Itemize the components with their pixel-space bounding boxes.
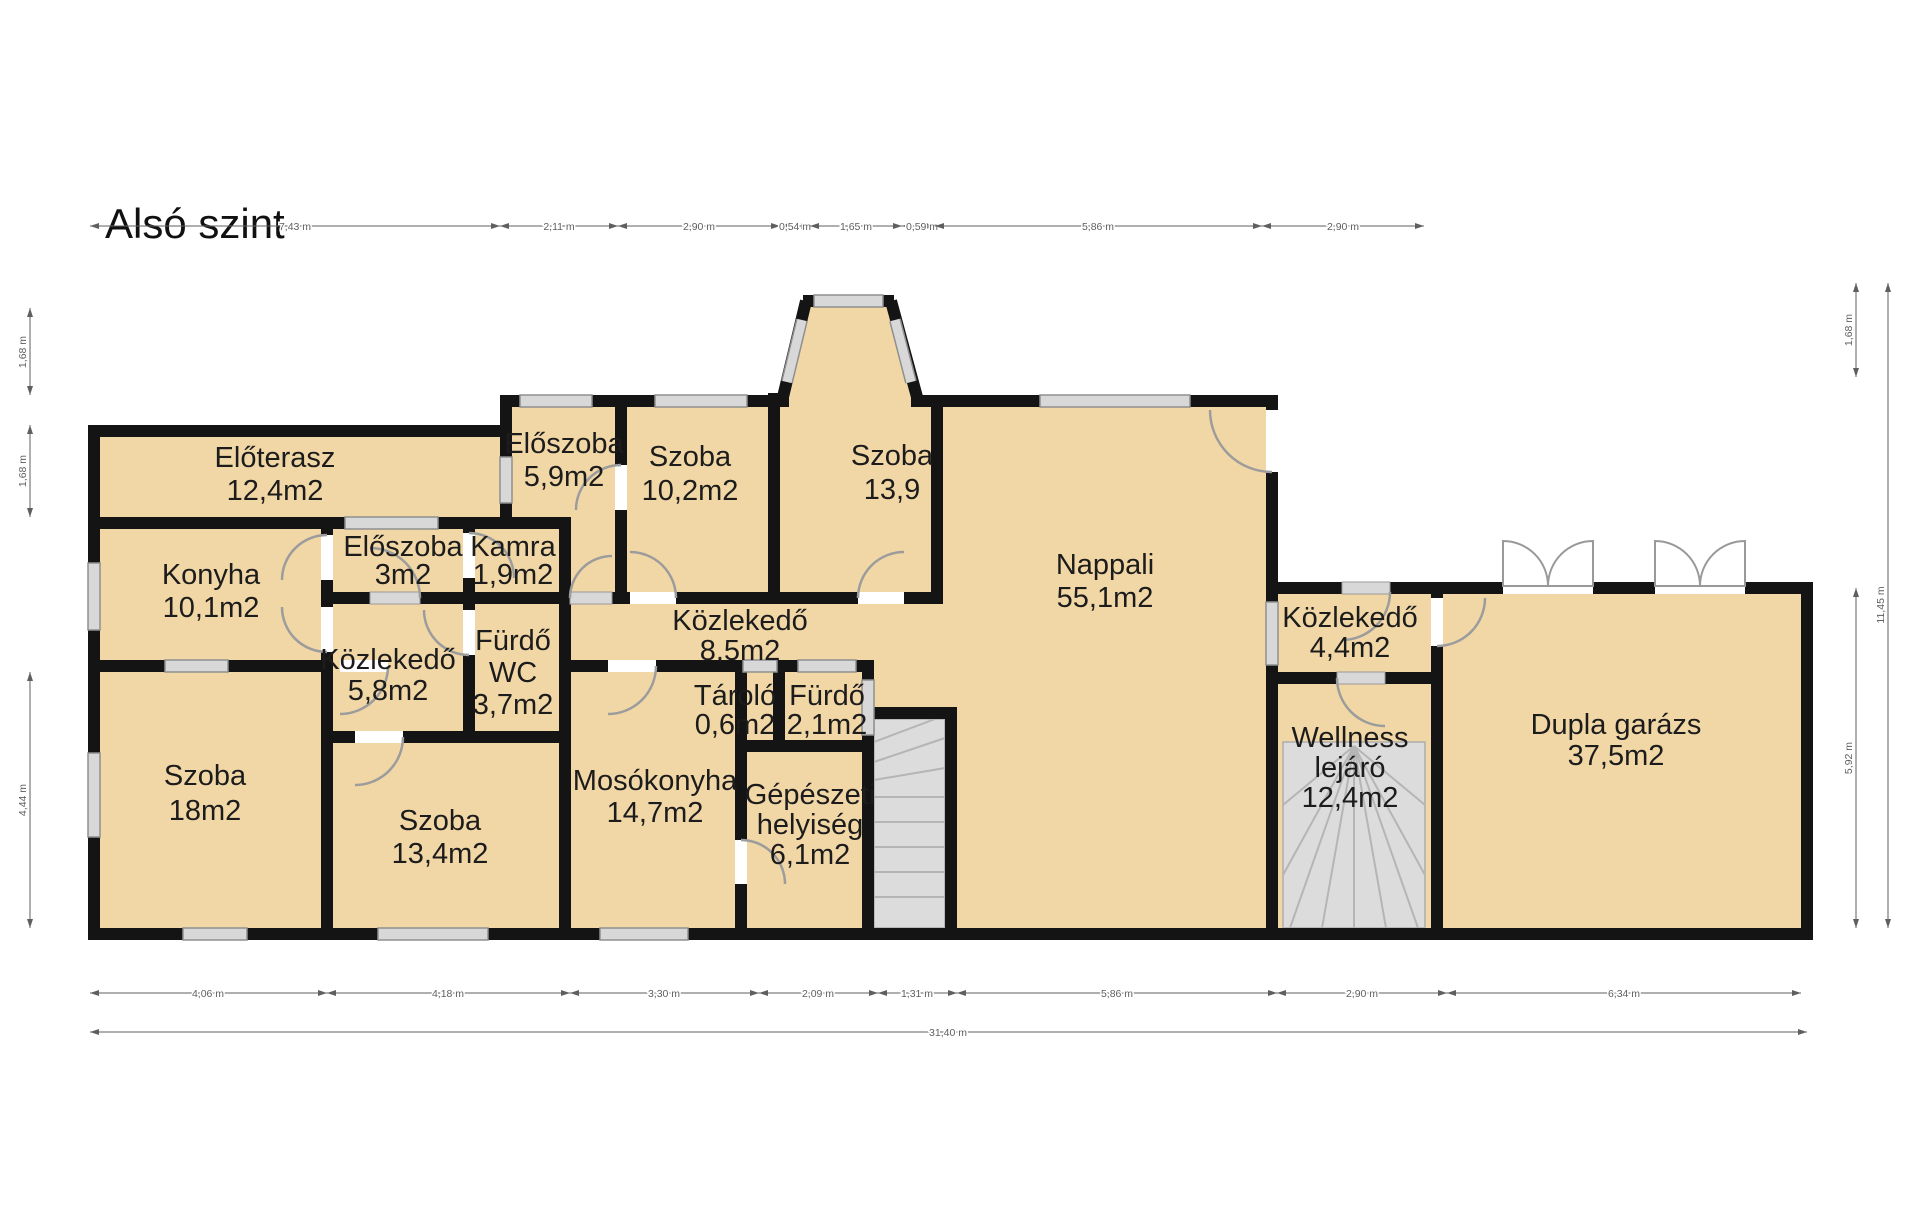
room-label: Gépészeti (745, 779, 876, 811)
dim-label: 0,54 m (779, 221, 811, 233)
window (88, 753, 100, 837)
dim-label: 1,68 m (17, 455, 29, 487)
dim-top-3: 0,54 m (779, 221, 811, 233)
window (378, 928, 488, 940)
room-label: 13,4m2 (392, 838, 489, 870)
garage-door-leaf (1503, 541, 1548, 586)
dim-label: 4,06 m (192, 988, 224, 1000)
dim-left-1: 1,68 m (17, 425, 30, 517)
dim-label: 3,30 m (648, 988, 680, 1000)
dim-bottom-1: 4,18 m (327, 988, 570, 1000)
room-label: Tároló (694, 680, 776, 712)
room-label: 14,7m2 (607, 797, 704, 829)
dim-left-2: 4,44 m (17, 672, 30, 928)
dim-label: 5,86 m (1101, 988, 1133, 1000)
room-label: 6,1m2 (770, 839, 851, 871)
dim-top-2: 2,90 m (618, 221, 780, 233)
room-label: Előterasz (215, 442, 336, 474)
dim-right-1: 5,92 m (1843, 588, 1856, 928)
room-label: Szoba (649, 441, 732, 473)
window (500, 457, 512, 503)
room-label: WC (489, 657, 537, 689)
room-label: 10,1m2 (163, 592, 260, 624)
room-label: 10,2m2 (642, 475, 739, 507)
room-label: Fürdő (789, 680, 865, 712)
room-label: 0,6m2 (695, 709, 776, 741)
room-label: 3m2 (375, 559, 431, 591)
room-label: 1,9m2 (473, 559, 554, 591)
opening-nappali-kozlekedo (1266, 602, 1278, 665)
dim-top-1: 2,11 m (500, 221, 618, 233)
window (655, 395, 747, 407)
room-label: 3,7m2 (473, 689, 554, 721)
dim-label: 31,40 m (929, 1027, 967, 1039)
window (345, 517, 438, 529)
page-title: Alsó szint (105, 200, 285, 247)
dim-bottom-5: 5,86 m (957, 988, 1277, 1000)
room-label: 5,9m2 (524, 461, 605, 493)
window (165, 660, 228, 672)
dim-label: 2,90 m (1327, 221, 1359, 233)
window (1040, 395, 1190, 407)
room-label: 12,4m2 (227, 475, 324, 507)
dim-label: 2,11 m (543, 221, 575, 233)
dim-bottom-3: 2,09 m (759, 988, 878, 1000)
room-label: 2,1m2 (787, 709, 868, 741)
room-label: 13,9 (864, 474, 920, 506)
room-label: helyiség (757, 809, 863, 841)
dim-label: 1,65 m (840, 221, 872, 233)
dim-left-0: 1,68 m (17, 308, 30, 395)
room-label: Közlekedő (672, 605, 807, 637)
dim-label: 1,68 m (1843, 314, 1855, 346)
dim-label: 0,59 m (906, 221, 938, 233)
room-label: 8,5m2 (700, 635, 781, 667)
window (183, 928, 247, 940)
dim-right-2: 11,45 m (1875, 283, 1888, 928)
room-label: Szoba (851, 440, 934, 472)
room-nappali (937, 401, 1272, 934)
room-label: Szoba (399, 805, 482, 837)
garage-door-leaf (1655, 541, 1700, 586)
dim-label: 4,44 m (17, 784, 29, 816)
room-label: Közlekedő (320, 644, 455, 676)
dim-label: 1,31 m (901, 988, 933, 1000)
dim-bottom-total: 31,40 m (90, 1027, 1807, 1039)
staircase-straight (874, 719, 945, 928)
floor-plan-also-szint: Alsó szint (0, 0, 1920, 1231)
room-label: 55,1m2 (1057, 582, 1154, 614)
dim-bottom-6: 2,90 m (1277, 988, 1447, 1000)
window (600, 928, 688, 940)
room-label: Wellness (1291, 722, 1408, 754)
dim-label: 11,45 m (1875, 586, 1887, 623)
room-label: Konyha (162, 559, 261, 591)
dim-label: 7,43 m (279, 221, 311, 233)
room-label: 18m2 (169, 795, 242, 827)
window (798, 660, 856, 672)
window (520, 395, 592, 407)
dim-right-0: 1,68 m (1843, 283, 1856, 377)
room-label: Szoba (164, 760, 247, 792)
room-label: 4,4m2 (1310, 632, 1391, 664)
room-label: Mosókonyha (573, 765, 738, 797)
dim-label: 2,09 m (802, 988, 834, 1000)
dim-bottom-7: 6,34 m (1447, 988, 1801, 1000)
dim-top-7: 2,90 m (1262, 221, 1424, 233)
room-label: 12,4m2 (1302, 782, 1399, 814)
dim-top-4: 1,65 m (810, 221, 902, 233)
room-label: lejáró (1315, 752, 1386, 784)
dim-label: 2,90 m (1346, 988, 1378, 1000)
room-label: 5,8m2 (348, 675, 429, 707)
dim-bottom-4: 1,31 m (878, 988, 957, 1000)
garage-door-leaf (1548, 541, 1593, 586)
dim-label: 1,68 m (17, 336, 29, 368)
floor-plan-page: Alsó szint (0, 0, 1920, 1231)
window (88, 563, 100, 630)
dim-label: 5,92 m (1843, 742, 1855, 774)
room-label: Nappali (1056, 549, 1154, 581)
dim-label: 4,18 m (432, 988, 464, 1000)
dim-label: 5,86 m (1082, 221, 1114, 233)
room-label: Dupla garázs (1531, 709, 1702, 741)
dim-bottom-2: 3,30 m (570, 988, 759, 1000)
dim-top-5: 0,59 m (902, 221, 938, 233)
window-bay (814, 295, 883, 307)
dim-bottom-0: 4,06 m (90, 988, 327, 1000)
dim-label: 6,34 m (1608, 988, 1640, 1000)
room-label: Előszoba (504, 428, 624, 460)
room-label: 37,5m2 (1568, 740, 1665, 772)
room-label: Fürdő (475, 625, 551, 657)
room-label: Közlekedő (1282, 602, 1417, 634)
garage-door-leaf (1700, 541, 1745, 586)
dim-top-6: 5,86 m (935, 221, 1262, 233)
dim-label: 2,90 m (683, 221, 715, 233)
